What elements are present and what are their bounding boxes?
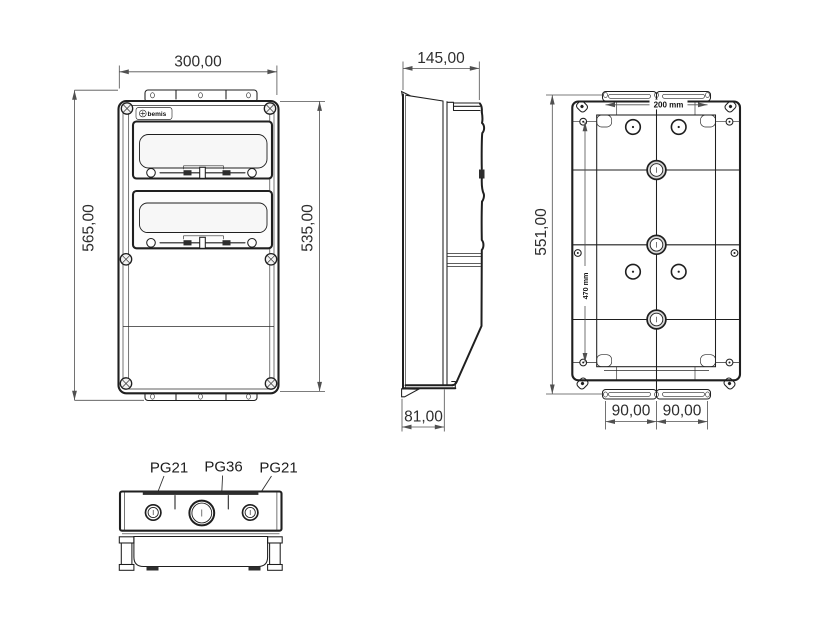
- knockout-hole: [626, 120, 641, 135]
- gland-left-label: PG21: [150, 460, 188, 477]
- bottom-mounting-tab: [603, 390, 657, 400]
- gland-center-label: PG36: [204, 459, 242, 476]
- dim-width-label: 300,00: [174, 54, 222, 71]
- cable-port: [647, 161, 666, 180]
- gland-right-label: PG21: [259, 460, 297, 477]
- dim-side-holes-label: 470 mm: [581, 273, 590, 300]
- dim-back-height-label: 551,00: [533, 208, 550, 256]
- gland-pg36-center: [189, 501, 214, 526]
- corner-screw: [265, 378, 276, 389]
- dim-bottom-holes: 90,00 90,00: [606, 401, 708, 430]
- back-view: 551,00 200 mm 470 mm 90,00 90,00: [533, 92, 740, 430]
- edge-screw: [731, 250, 738, 257]
- top-mounting-tab: [603, 92, 657, 102]
- dim-top-holes-label: 200 mm: [654, 100, 684, 109]
- knockout-hole: [626, 264, 641, 279]
- dim-depth: 145,00: [403, 50, 479, 100]
- foot-pad: [249, 567, 261, 571]
- left-leg: [119, 537, 134, 571]
- base-recess-panel: [134, 537, 268, 567]
- technical-drawing-page: bemis 300,00 565,00 535,00: [0, 0, 825, 625]
- window-lock-hole: [248, 239, 257, 248]
- bottom-view: PG21 PG36 PG21: [119, 459, 297, 571]
- foot-profile: [402, 389, 419, 397]
- edge-screw: [574, 250, 581, 257]
- window-lock-hole: [147, 169, 156, 178]
- dim-bottom-left-label: 90,00: [612, 403, 651, 420]
- dim-width: 300,00: [119, 54, 277, 96]
- right-leg: [268, 537, 283, 571]
- edge-screw: [726, 118, 733, 125]
- dim-overall-height-label: 565,00: [80, 204, 97, 252]
- dim-base-depth: 81,00: [402, 390, 444, 432]
- dim-depth-label: 145,00: [417, 50, 465, 67]
- din-window-1: [133, 122, 272, 179]
- enclosure-technical-drawing: bemis 300,00 565,00 535,00: [0, 0, 825, 625]
- cable-port: [647, 310, 666, 329]
- edge-screw: [726, 359, 733, 366]
- dim-bottom-right-label: 90,00: [663, 403, 702, 420]
- hinge-block: [479, 170, 485, 179]
- side-view: 145,00 81,00: [402, 50, 485, 432]
- corner-screw: [121, 103, 132, 114]
- gland-plate-edge: [143, 491, 259, 495]
- din-window-2: [133, 191, 272, 248]
- window-lock-hole: [248, 169, 257, 178]
- front-view: bemis 300,00 565,00 535,00: [72, 54, 325, 401]
- bottom-mounting-tab: [657, 390, 711, 400]
- lid-profile: [447, 103, 485, 385]
- dim-body-height-label: 535,00: [299, 204, 316, 252]
- mid-screw: [265, 254, 276, 265]
- mid-screw: [120, 254, 131, 265]
- corner-screw: [264, 103, 275, 114]
- dim-body-height: 535,00: [280, 101, 325, 391]
- corner-screw: [120, 378, 131, 389]
- knockout-hole: [671, 120, 686, 135]
- logo-text: bemis: [148, 111, 167, 118]
- dim-base-depth-label: 81,00: [404, 409, 443, 426]
- gland-pg21-left: [146, 505, 161, 520]
- cable-port: [647, 235, 666, 254]
- foot-pad: [147, 567, 159, 571]
- window-lock-hole: [147, 239, 156, 248]
- knockout-hole: [671, 264, 686, 279]
- gland-pg21-right: [243, 505, 258, 520]
